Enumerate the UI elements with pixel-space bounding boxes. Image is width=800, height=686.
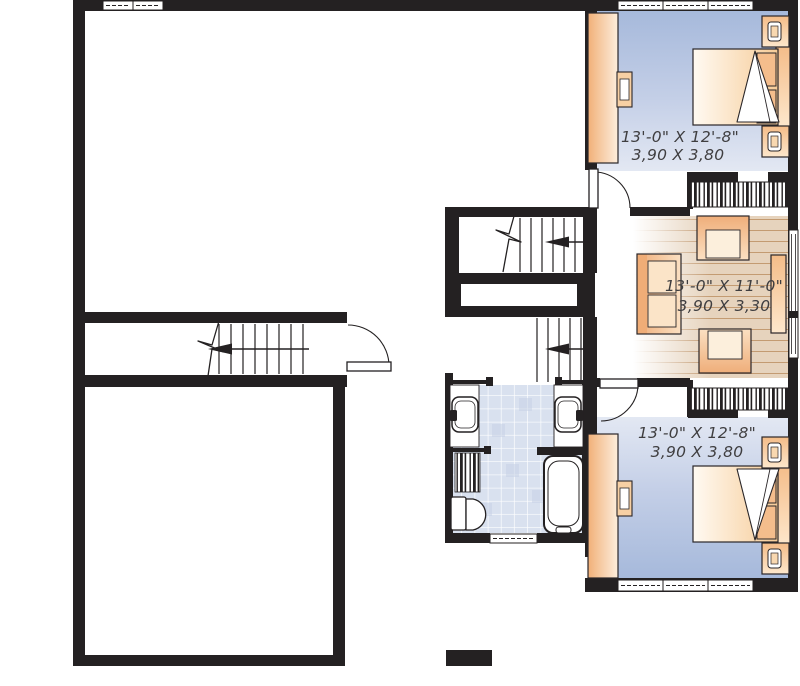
tv-screen <box>620 79 629 100</box>
window-bathroom <box>490 534 537 543</box>
window-family-room-right <box>788 230 798 358</box>
wall-familyroom-top <box>630 207 690 216</box>
armchair-seat <box>708 331 742 359</box>
faucet-icon <box>576 410 583 421</box>
window-bedroom-top <box>618 1 753 10</box>
wall-bathroom-bottom-a <box>445 533 490 543</box>
bedroom-bottom-door <box>600 379 638 421</box>
wall-bedroom-top-south-b <box>768 172 798 182</box>
lamp-base <box>771 447 778 458</box>
window-top-left <box>103 1 163 10</box>
closet-hanging-icon-bottom <box>691 388 788 410</box>
lamp-base <box>771 553 778 564</box>
floor-plan-page: 13'-0" X 12'-8" 3,90 X 3,80 13'-0" X 11'… <box>0 0 800 686</box>
bedroom-top-dim-imperial: 13'-0" X 12'-8" <box>621 128 739 146</box>
door-leaf-icon <box>589 169 598 208</box>
wall-familyroom-bottom <box>637 378 690 387</box>
stairs-upper-center <box>496 209 591 272</box>
bedroom-bottom-dim-metric: 3,90 X 3,80 <box>651 443 744 461</box>
stair-arrow-icon <box>545 237 569 248</box>
stairs-corridor <box>198 321 309 376</box>
door-swing-icon <box>594 172 630 208</box>
door-swing-icon <box>601 384 638 421</box>
family-room-dim-metric: 3,90 X 3,30 <box>678 297 771 315</box>
toilet-icon <box>451 497 486 530</box>
bedroom-bottom-dim-imperial: 13'-0" X 12'-8" <box>638 424 756 442</box>
lamp-base <box>771 136 778 147</box>
closet-hanging-icon-top <box>691 182 788 207</box>
wall-corridor-bottom <box>73 375 347 387</box>
corridor-door <box>347 325 391 371</box>
wall-stair-left <box>445 207 459 273</box>
lamp-base <box>771 26 778 37</box>
armchair-seat <box>706 230 740 258</box>
dresser-icon <box>588 13 618 163</box>
wall-bottomleft-room-bottom <box>73 655 345 666</box>
floor-plan: 13'-0" X 12'-8" 3,90 X 3,80 13'-0" X 11'… <box>0 0 800 686</box>
stairwell-opening <box>461 284 577 306</box>
wall-corridor-top <box>73 312 347 323</box>
door-leaf-icon <box>347 362 391 371</box>
dresser-icon <box>588 434 618 578</box>
door-leaf-icon <box>600 379 638 388</box>
wall-bedroom-top-south-a <box>688 172 738 182</box>
door-swing-icon <box>348 325 389 366</box>
faucet-icon <box>450 410 457 421</box>
bedroom-top-door <box>589 169 630 208</box>
wall-bath-mid-left-cap <box>484 446 491 454</box>
wall-stair-right-lower <box>583 317 597 383</box>
wall-bath-mid-right <box>537 447 582 455</box>
bathtub-icon <box>544 456 583 533</box>
linen-closet-icon <box>455 453 480 492</box>
window-bedroom-bottom <box>618 580 753 591</box>
wall-bottomleft-room-right <box>333 375 345 666</box>
wall-isolated-pier <box>446 650 492 666</box>
stair-break-line <box>496 209 521 272</box>
wall-vanity-stub-left-cap <box>486 377 493 386</box>
bedroom-top-dim-metric: 3,90 X 3,80 <box>632 146 725 164</box>
tv-screen <box>620 488 629 509</box>
stairs-lower-center <box>537 318 590 382</box>
wall-exterior-left <box>73 0 85 666</box>
wall-stair-right-upper <box>583 207 597 273</box>
family-room-dim-imperial: 13'-0" X 11'-0" <box>665 277 783 295</box>
